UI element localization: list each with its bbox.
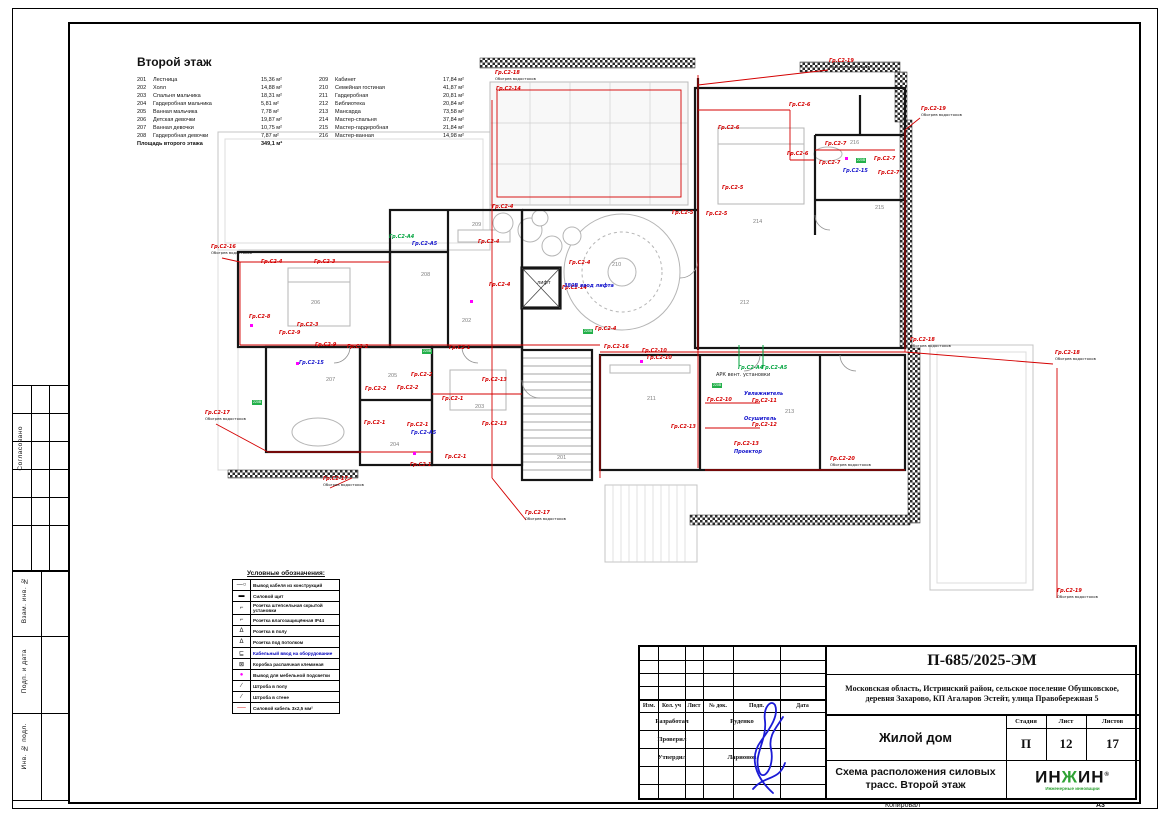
legend-label: Кабельный ввод на оборудование [251, 650, 339, 657]
sheet-title: Схема расположения силовых трасс. Второй… [827, 760, 1004, 798]
room-number: 213 [785, 409, 794, 415]
room-number: 201 [557, 455, 566, 461]
circuit-label: Гр.С2-А5 [762, 365, 787, 371]
room-number: 211 [647, 396, 656, 402]
outlet-marker [640, 360, 643, 363]
cable-icon: ── [233, 703, 251, 713]
signature [735, 697, 795, 799]
legend-row: ∕Штроба в стене [233, 692, 339, 703]
circuit-label: Гр.С2-4 [478, 239, 499, 245]
outlet-marker [470, 300, 473, 303]
stage-label: Стадия [1006, 714, 1046, 728]
circuit-label: Гр.С2-2 [347, 344, 368, 350]
room-number: 204 [390, 442, 399, 448]
circuit-label: Гр.С2-4 [261, 259, 282, 265]
podp-data-label: Подп. и дата [21, 649, 28, 693]
room-number: 205 [388, 373, 397, 379]
furniture-icon: ● [233, 670, 251, 680]
legend-row: ΔРозетка в полу [233, 626, 339, 637]
circuit-label: Гр.С2-7 [819, 160, 840, 166]
circuit-label: Гр.С2-А5 [411, 430, 436, 436]
circuit-label: Увлажнитель [744, 391, 783, 397]
outlet-220v-chip: 220В [712, 383, 722, 388]
circuit-label: Гр.С2-20Обогрев водостоков [830, 456, 871, 467]
room-number: 216 [850, 140, 859, 146]
room-number: 206 [311, 300, 320, 306]
circuit-label: Гр.С2-17Обогрев водостоков [323, 476, 364, 487]
company-logo: ИНЖИН® Инженерные инновации [1006, 760, 1139, 798]
floor-plan-drawing [200, 50, 1140, 620]
circuit-label: Гр.С2-16Обогрев водостоков [211, 244, 252, 255]
legend-label: Штроба в полу [251, 683, 339, 690]
circuit-label: Гр.С2-4 [492, 204, 513, 210]
approval-table: Согласовано [12, 385, 69, 572]
circuit-label: Проектор [734, 449, 762, 455]
legend-row: ΔРозетка под потолком [233, 637, 339, 648]
title-block: Изм. Кол. уч Лист № док. Подп. Дата Разр… [638, 645, 1137, 800]
role-checker: Проверил [640, 730, 702, 748]
circuit-label: Гр.С2-2 [365, 386, 386, 392]
circuit-label: Гр.С2-18Обогрев водостоков [495, 70, 536, 81]
outlet-marker [845, 157, 848, 160]
object-name: Жилой дом [825, 714, 1006, 760]
document-number: П-685/2025-ЭМ [825, 647, 1139, 674]
circuit-label: Гр.С2-1 [449, 345, 470, 351]
legend-row: ⊑Кабельный ввод на оборудование [233, 648, 339, 659]
sheets-label: Листов [1086, 714, 1139, 728]
circuit-label: Осушитель [744, 416, 776, 422]
circuit-label: лифт [537, 280, 551, 286]
circuit-label: Гр.С2-2 [397, 385, 418, 391]
circuit-label: Гр.С2-17Обогрев водостоков [205, 410, 246, 421]
role-developer: Разработал [640, 712, 702, 730]
outlet-220v-chip: 220В [856, 158, 866, 163]
circuit-label: Гр.С2-5 [722, 185, 743, 191]
circuit-label: Гр.С2-19Обогрев водостоков [1057, 588, 1098, 599]
sheets-value: 17 [1086, 728, 1139, 760]
circuit-label: Гр.С2-1 [407, 422, 428, 428]
circuit-label: Гр.С2-А4 [738, 365, 763, 371]
circuit-label: Гр.С2-1 [445, 454, 466, 460]
outlet-marker [413, 452, 416, 455]
sheet-label: Лист [1046, 714, 1086, 728]
circuit-label: Гр.С2-13 [482, 421, 507, 427]
circuit-label: Гр.С2-10 [647, 355, 672, 361]
legend-row: ⊠Коробка распаячная клеммная [233, 659, 339, 670]
room-number: 215 [875, 205, 884, 211]
circuit-label: 380В ввод лифта [564, 283, 614, 289]
circuit-label: Гр.С2-6 [787, 151, 808, 157]
legend-row: ●Вывод для мебельной подсветки [233, 670, 339, 681]
circuit-label: Гр.С2-А4 [389, 234, 414, 240]
room-number: 208 [421, 272, 430, 278]
circuit-label: Гр.С2-10 [707, 397, 732, 403]
circuit-label: Гр.С2-9 [315, 342, 336, 348]
circuit-label: Гр.С2-4 [489, 282, 510, 288]
equipment-icon: ⊑ [233, 648, 251, 658]
circuit-label: Гр.С2-1 [364, 420, 385, 426]
room-number: 212 [740, 300, 749, 306]
chase-floor-icon: ∕ [233, 681, 251, 691]
circuit-label: Гр.С2-2 [411, 372, 432, 378]
circuit-label: Гр.С2-3 [314, 259, 335, 265]
copied-label: Копировал [885, 802, 920, 809]
legend-row: ──Силовой кабель 3х2,5 мм² [233, 703, 339, 713]
circuit-label: Гр.С2-8 [249, 314, 270, 320]
circuit-label: Гр.С2-12 [752, 422, 777, 428]
circuit-label: Гр.С2-18Обогрев водостоков [910, 337, 951, 348]
legend-row: ∕Штроба в полу [233, 681, 339, 692]
circuit-label: Гр.С2-11 [752, 398, 777, 404]
circuit-label: Гр.С2-7 [874, 156, 895, 162]
circuit-label: Гр.С2-6 [789, 102, 810, 108]
project-address: Московская область, Истринский район, се… [830, 674, 1134, 714]
circuit-label: Гр.С2-13 [734, 441, 759, 447]
circuit-label: Гр.С2-15 [299, 360, 324, 366]
circuit-label: Гр.С2-1 [410, 462, 431, 468]
inv-label: Инв. № подл. [21, 723, 28, 770]
circuit-label: Гр.С2-А5 [412, 241, 437, 247]
circuit-label: Гр.С2-9 [279, 330, 300, 336]
socket-floor-icon: Δ [233, 626, 251, 636]
circuit-label: Гр.С2-3 [297, 322, 318, 328]
circuit-label: Гр.С2-19Обогрев водостоков [921, 106, 962, 117]
format-label: А3 [1096, 802, 1105, 809]
skylight-grid [490, 82, 688, 205]
stairs [522, 358, 592, 470]
sheet-value: 12 [1046, 728, 1086, 760]
circuit-label: АРК вент. установки [716, 372, 770, 378]
circuit-label: Гр.С2-5 [706, 211, 727, 217]
col-list: Лист [685, 699, 703, 712]
legend-label: Вывод для мебельной подсветки [251, 672, 339, 679]
circuit-label: Гр.С2-4 [569, 260, 590, 266]
approved-label: Согласовано [17, 426, 24, 471]
legend-label: Розетка под потолком [251, 639, 339, 646]
room-number: 202 [462, 318, 471, 324]
room-number: 207 [326, 377, 335, 383]
room-number: 203 [475, 404, 484, 410]
circuit-label: Гр.С2-10 [642, 348, 667, 354]
circuit-label: Гр.С2-19Обогрев водостоков [829, 58, 870, 69]
circuit-label: Гр.С2-15 [843, 168, 868, 174]
outlet-220v-chip: 220В [583, 329, 593, 334]
inventory-table: Взам. инв. № Подп. и дата Инв. № подл. [12, 570, 69, 801]
circuit-label: Гр.С2-18Обогрев водостоков [1055, 350, 1096, 361]
circuit-label: Гр.С2-13 [482, 377, 507, 383]
circuit-label: Гр.С2-17Обогрев водостоков [525, 510, 566, 521]
room-number: 214 [753, 219, 762, 225]
circuit-label: Гр.С2-1 [442, 396, 463, 402]
col-doc: № док. [703, 699, 733, 712]
circuit-label: Гр.С2-7 [825, 141, 846, 147]
chase-wall-icon: ∕ [233, 692, 251, 702]
role-approver: Утвердил [640, 748, 702, 766]
outlet-marker [296, 362, 299, 365]
legend-label: Розетка в полу [251, 628, 339, 635]
stage-value: П [1006, 728, 1046, 760]
outlet-marker [250, 324, 253, 327]
circuit-label: Гр.С2-6 [718, 125, 739, 131]
outlet-220v-chip: 220В [422, 349, 432, 354]
col-izm: Изм. [640, 699, 658, 712]
vzam-label: Взам. инв. № [21, 577, 28, 623]
legend-label: Коробка распаячная клеммная [251, 661, 339, 668]
legend-label: Силовой кабель 3х2,5 мм² [251, 705, 339, 712]
circuit-label: Гр.С2-16 [604, 344, 629, 350]
lift-cross [522, 268, 560, 308]
junction-icon: ⊠ [233, 659, 251, 669]
socket-ceiling-icon: Δ [233, 637, 251, 647]
col-kol: Кол. уч [658, 699, 685, 712]
circuit-label: Гр.С2-7 [878, 170, 899, 176]
drawing-sheet: Согласовано Взам. инв. № Подп. и дата Ин… [0, 0, 1166, 816]
circuit-label: Гр.С2-14 [496, 86, 521, 92]
room-number: 209 [472, 222, 481, 228]
outlet-220v-chip: 220В [252, 400, 262, 405]
floor-plan: Гр.С2-18Обогрев водостоковГр.С2-19Обогре… [200, 50, 1140, 620]
room-number: 210 [612, 262, 621, 268]
circuit-label: Гр.С2-5 [672, 210, 693, 216]
circuit-label: Гр.С2-13 [671, 424, 696, 430]
legend-label: Штроба в стене [251, 694, 339, 701]
circuit-label: Гр.С2-4 [595, 326, 616, 332]
